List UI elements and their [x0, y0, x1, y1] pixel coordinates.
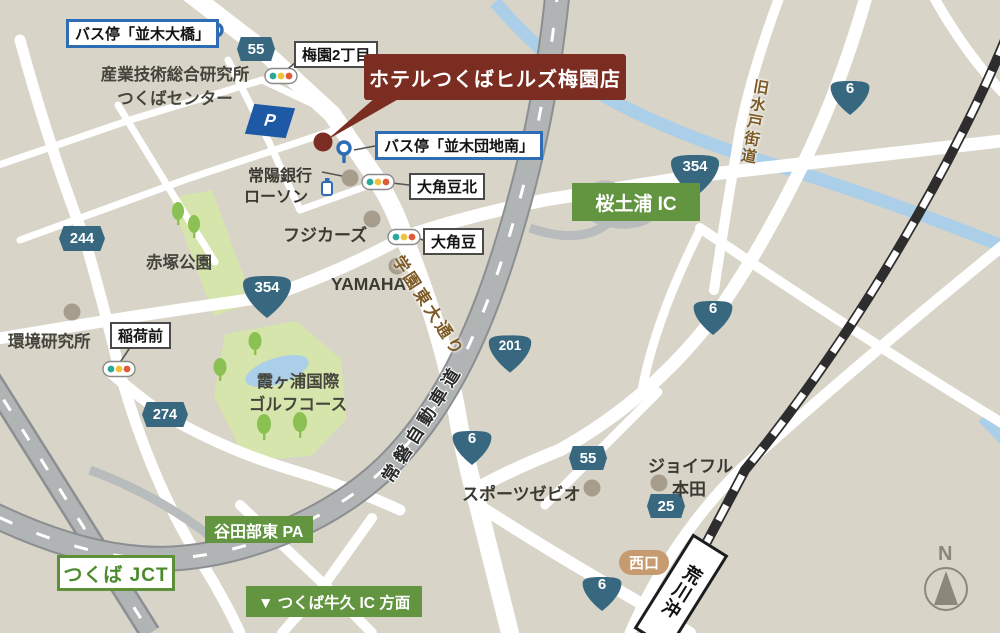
compass-icon	[925, 568, 967, 610]
intersection-label-inarimae: 稲荷前	[110, 322, 171, 349]
route-badge-55-north: 55	[237, 37, 275, 61]
fuji-cars-label: フジカーズ	[283, 221, 367, 246]
route-shield-354-west: 354	[241, 274, 293, 320]
env-institute-label: 環境研究所	[8, 328, 91, 352]
route-badge-244: 244	[59, 226, 105, 251]
compass-north-label: N	[938, 543, 952, 566]
route-shield-6-mid: 6	[692, 295, 734, 341]
hotel-banner: ホテルつくばヒルズ梅園店	[364, 54, 626, 100]
joyful-honda-label-line1: ジョイフル	[648, 452, 733, 477]
akatsuka-park-label: 赤塚公園	[146, 249, 212, 273]
bus-stop-label-namiki-danchi: バス停「並木団地南」	[375, 131, 543, 160]
route-map: バス停「並木大橋」 産業技術総合研究所 つくばセンター 55 梅園2丁目 ホテル…	[0, 0, 1000, 633]
route-shield-6-ne: 6	[829, 75, 871, 121]
sports-xebio-label: スポーツゼビオ	[462, 480, 581, 505]
route-badge-274: 274	[142, 402, 188, 427]
ushiku-direction-label: ▼ つくば牛久 IC 方面	[246, 586, 422, 617]
store-icon	[322, 178, 332, 195]
route-shield-201: 201	[487, 333, 533, 375]
golf-label-line1: 霞ヶ浦国際	[223, 368, 373, 392]
golf-label-line2: ゴルフコース	[223, 391, 373, 415]
lawson-label: ローソン	[244, 183, 308, 207]
route-badge-55-south: 55	[569, 446, 607, 470]
route-shield-6-south: 6	[581, 571, 623, 617]
west-exit-label: 西口	[619, 550, 669, 575]
tsukuba-jct-label: つくば JCT	[57, 555, 175, 591]
sakura-tsuchiura-ic-label: 桜土浦 IC	[572, 183, 700, 221]
yamaha-label: YAMAHA	[331, 274, 406, 295]
hotel-location-dot	[314, 133, 333, 152]
joyful-honda-label-line2: 本田	[672, 475, 706, 500]
route-shield-6-center: 6	[451, 425, 493, 471]
aist-label-line2: つくばセンター	[85, 85, 265, 109]
intersection-label-sasagi: 大角豆	[423, 228, 484, 255]
bus-stop-label-namiki-ohashi: バス停「並木大橋」	[66, 19, 219, 48]
aist-label-line1: 産業技術総合研究所	[85, 61, 265, 85]
intersection-label-sasagi-kita: 大角豆北	[409, 173, 485, 200]
yatabe-higashi-pa-label: 谷田部東 PA	[205, 516, 313, 543]
